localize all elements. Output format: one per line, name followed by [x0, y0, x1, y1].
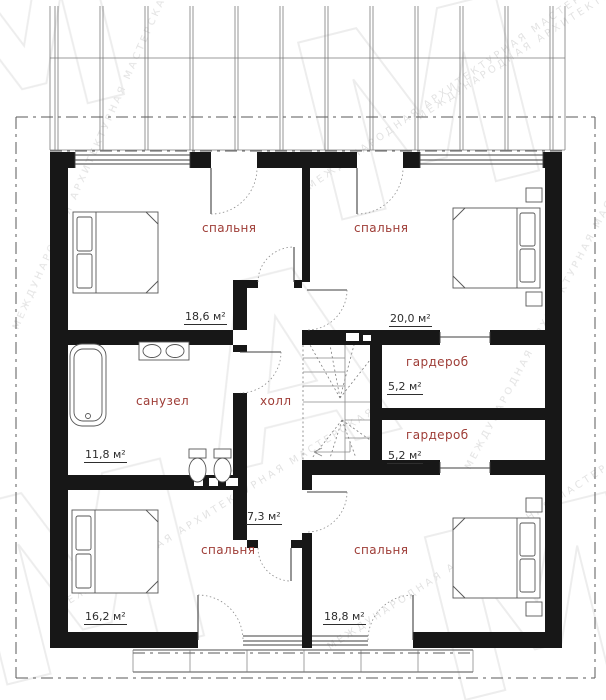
nightstand	[526, 602, 542, 616]
room-label-hall: холл	[260, 395, 291, 407]
wall-exterior-right	[545, 152, 562, 648]
wall-wardrobe1-top	[490, 330, 545, 345]
wall-exterior-left	[50, 152, 68, 648]
room-label-bedroom-bottom-right: спальня	[354, 544, 408, 556]
wall-between-bottom-bedrooms	[302, 475, 312, 490]
area-label-bedroom-top-left: 18,6 м²	[184, 311, 227, 325]
wall-top	[50, 152, 75, 168]
wall-between-top-bedrooms	[302, 168, 310, 282]
wall-top	[257, 152, 357, 168]
door-top-left-bedroom-exterior	[211, 168, 257, 214]
wall-top	[403, 152, 420, 168]
wall-bathroom-right	[233, 345, 247, 352]
area-label-bedroom-bottom-right: 18,8 м²	[323, 611, 366, 625]
area-label-wardrobe-bottom: 5,2 м²	[387, 450, 423, 464]
floor-plan-canvas: М М А М М МЕЖДУНАРОДНАЯ АРХИТЕКТУРНАЯ МА…	[0, 0, 606, 700]
bed-bedroom1	[73, 212, 158, 293]
room-label-bedroom-bottom-left: спальня	[201, 544, 255, 556]
area-label-wardrobe-top: 5,2 м²	[387, 381, 423, 395]
toilet	[189, 449, 206, 482]
wall-bedroom1-bottom	[233, 280, 258, 288]
wall-bedroom1-right	[233, 288, 247, 330]
stair-wall-niche	[346, 333, 359, 341]
wardrobe-opening-top	[440, 332, 490, 343]
wall-bathroom-right	[233, 393, 247, 475]
wall-bathroom-bottom	[68, 475, 190, 490]
floor-plan-drawing: М М А М М МЕЖДУНАРОДНАЯ АРХИТЕКТУРНАЯ МА…	[0, 0, 606, 700]
wall-bottom	[413, 632, 562, 648]
nightstand	[526, 188, 542, 202]
room-label-bathroom: санузел	[136, 395, 189, 407]
area-label-bedroom-top-right: 20,0 м²	[389, 313, 432, 327]
wall-stair-right	[370, 345, 382, 460]
bed-bedroom3	[72, 510, 158, 593]
wall-hall-nook-left	[233, 490, 247, 540]
wall-top	[543, 152, 562, 168]
stair-wall-niche	[363, 335, 371, 341]
wall-wardrobe-divider	[370, 408, 545, 420]
wall-bottom	[50, 632, 198, 648]
room-label-wardrobe-bottom: гардероб	[406, 429, 469, 441]
area-label-bedroom-bottom-left: 16,2 м²	[84, 611, 127, 625]
nightstand	[526, 498, 542, 512]
door-bedroom3-hall	[258, 548, 291, 581]
wall-bedroom1-bottom	[294, 280, 302, 288]
area-label-bathroom: 11,8 м²	[84, 449, 127, 463]
room-label-bedroom-top-left: спальня	[202, 222, 256, 234]
wall-wardrobe1-top	[380, 330, 440, 345]
room-label-wardrobe-top: гардероб	[406, 356, 469, 368]
bathtub	[70, 344, 106, 426]
room-label-bedroom-top-right: спальня	[354, 222, 408, 234]
wall-bedroom3-door-jamb	[291, 540, 302, 548]
area-label-hall: 7,3 м²	[246, 511, 282, 525]
wall-between-bottom-bedrooms	[302, 533, 312, 648]
wall-wardrobe2-bottom	[490, 460, 545, 475]
wall-top	[190, 152, 211, 168]
double-sink	[139, 342, 189, 360]
window-bottom-left	[243, 636, 302, 645]
bidet	[214, 449, 231, 482]
nightstand	[526, 292, 542, 306]
